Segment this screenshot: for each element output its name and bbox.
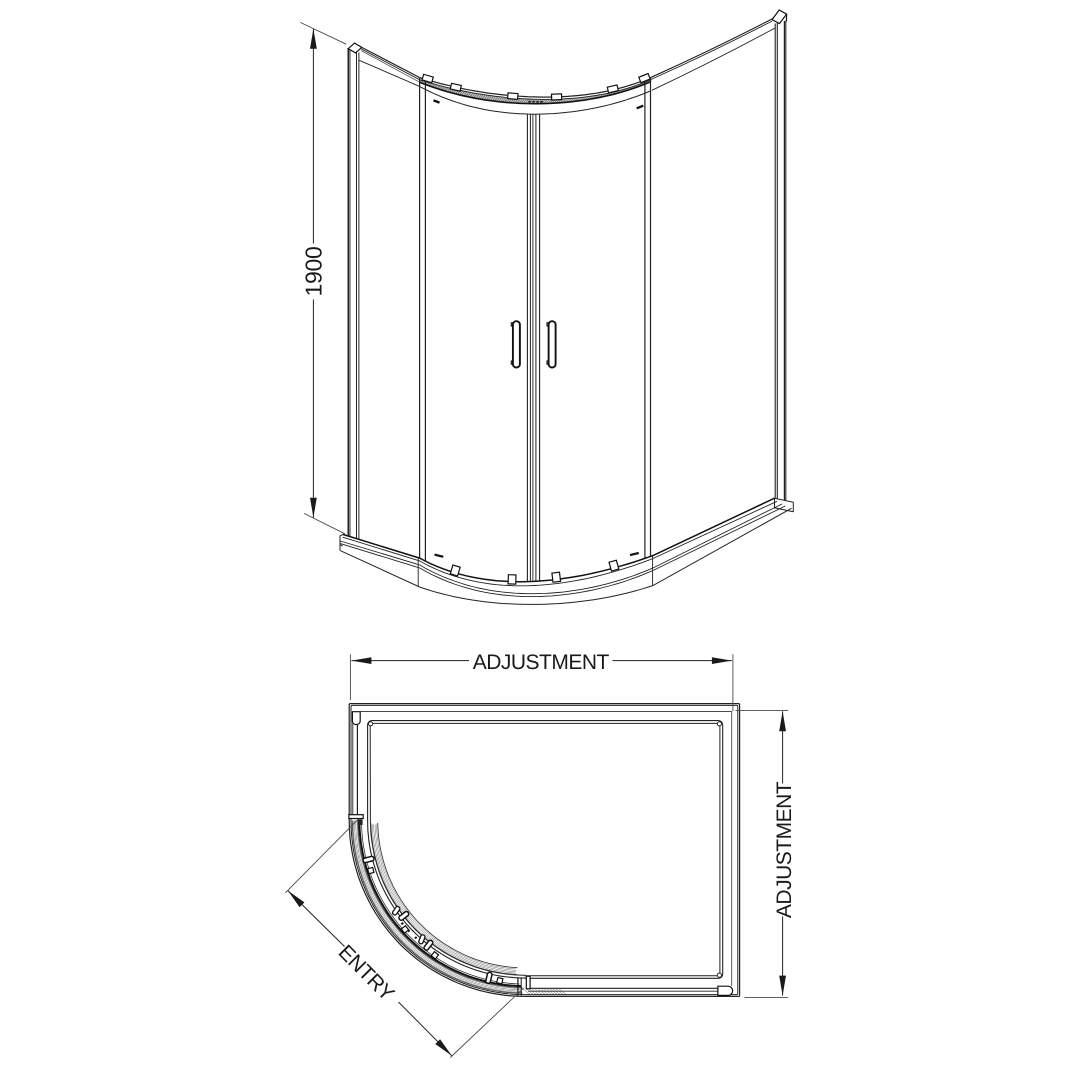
svg-text:ENTRY: ENTRY — [334, 941, 399, 1006]
svg-text:ADJUSTMENT: ADJUSTMENT — [473, 651, 610, 674]
svg-text:ADJUSTMENT: ADJUSTMENT — [773, 781, 796, 918]
svg-text:1900: 1900 — [301, 247, 327, 297]
